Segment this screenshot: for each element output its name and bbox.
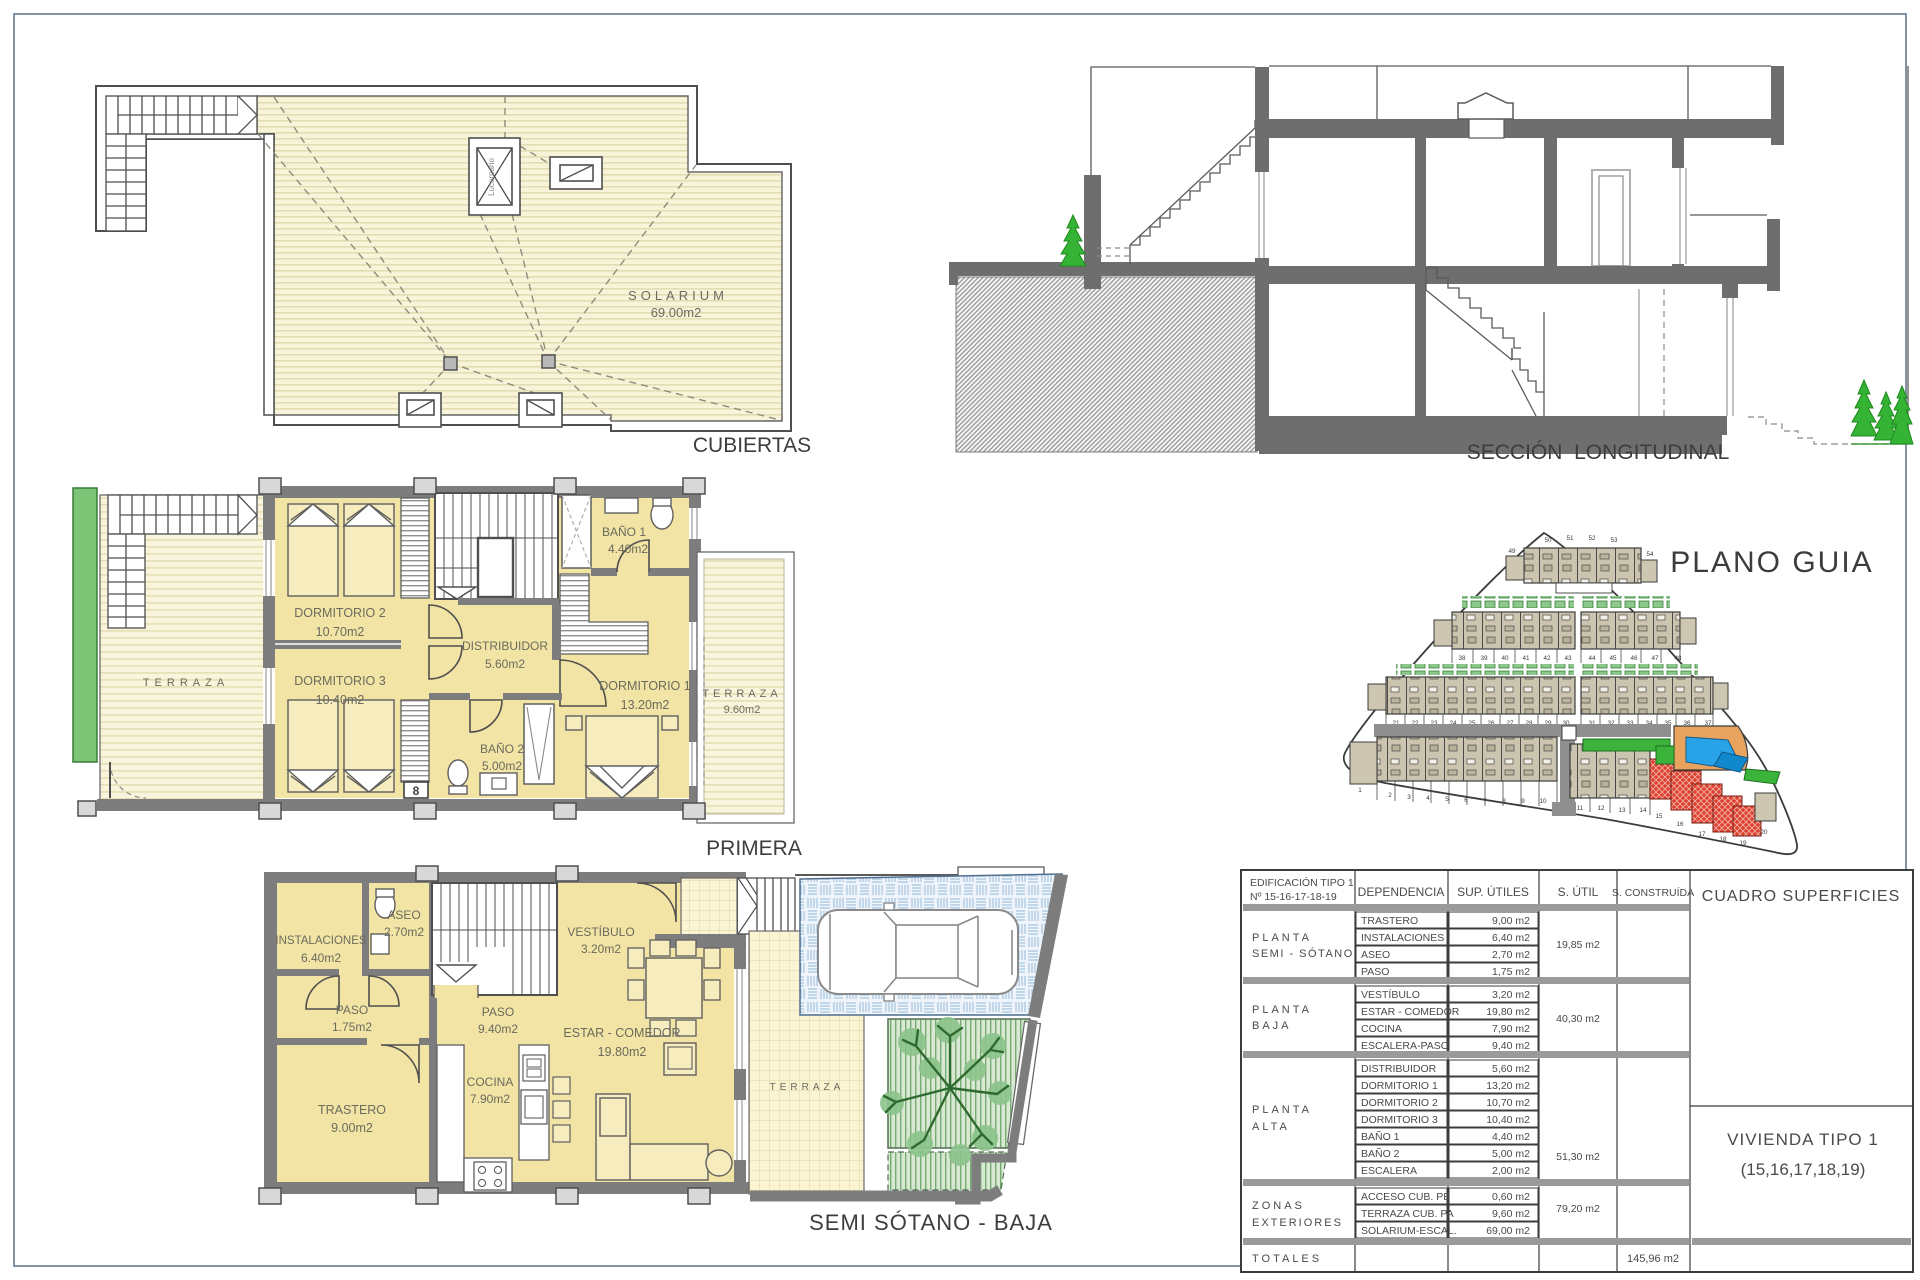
svg-text:TRASTERO: TRASTERO (318, 1103, 386, 1117)
svg-text:9,60 m2: 9,60 m2 (1492, 1208, 1530, 1220)
svg-text:DORMITORIO 3: DORMITORIO 3 (1361, 1114, 1438, 1126)
svg-text:49: 49 (1508, 548, 1516, 555)
svg-text:ESTAR - COMEDOR: ESTAR - COMEDOR (563, 1026, 680, 1040)
svg-text:69,00 m2: 69,00 m2 (1486, 1225, 1530, 1237)
svg-text:53: 53 (1610, 537, 1618, 544)
svg-text:9.40m2: 9.40m2 (478, 1022, 518, 1036)
svg-text:ESCALERA-PASO: ESCALERA-PASO (1361, 1040, 1449, 1052)
svg-text:7.90m2: 7.90m2 (470, 1092, 510, 1106)
svg-text:20: 20 (1760, 829, 1768, 836)
svg-text:14: 14 (1639, 807, 1647, 814)
svg-text:DORMITORIO 2: DORMITORIO 2 (294, 606, 385, 620)
svg-text:3.20m2: 3.20m2 (581, 942, 621, 956)
svg-text:SEMI - SÓTANO: SEMI - SÓTANO (1252, 947, 1354, 960)
svg-text:13.20m2: 13.20m2 (621, 698, 670, 712)
svg-text:19,85 m2: 19,85 m2 (1556, 939, 1600, 951)
svg-text:SECCIÓN LONGITUDINAL: SECCIÓN LONGITUDINAL (1467, 441, 1730, 464)
svg-text:145,96 m2: 145,96 m2 (1627, 1253, 1679, 1265)
svg-text:51: 51 (1566, 535, 1574, 542)
svg-text:17: 17 (1698, 831, 1706, 838)
svg-text:ASEO: ASEO (1361, 949, 1390, 961)
svg-text:ESCALERA: ESCALERA (1361, 1165, 1417, 1177)
svg-text:DEPENDENCIA: DEPENDENCIA (1358, 885, 1445, 899)
svg-text:5,00 m2: 5,00 m2 (1492, 1148, 1530, 1160)
svg-text:13,20 m2: 13,20 m2 (1486, 1080, 1530, 1092)
svg-text:BAJA: BAJA (1252, 1020, 1292, 1032)
svg-text:TRASTERO: TRASTERO (1361, 915, 1418, 927)
svg-text:BAÑO 2: BAÑO 2 (480, 742, 524, 756)
svg-text:19.80m2: 19.80m2 (598, 1045, 647, 1059)
svg-text:79,20 m2: 79,20 m2 (1556, 1203, 1600, 1215)
svg-text:39: 39 (1480, 655, 1488, 662)
svg-text:TOTALES: TOTALES (1252, 1253, 1322, 1265)
svg-text:DORMITORIO 1: DORMITORIO 1 (1361, 1080, 1438, 1092)
svg-text:1.75m2: 1.75m2 (332, 1020, 372, 1034)
svg-text:2,70 m2: 2,70 m2 (1492, 949, 1530, 961)
svg-text:9.60m2: 9.60m2 (724, 704, 761, 716)
svg-text:48: 48 (1674, 655, 1682, 662)
svg-text:6.40m2: 6.40m2 (301, 951, 341, 965)
svg-text:(15,16,17,18,19): (15,16,17,18,19) (1741, 1160, 1866, 1179)
svg-text:PASO: PASO (336, 1003, 368, 1017)
svg-text:15: 15 (1655, 813, 1663, 820)
svg-text:PRIMERA: PRIMERA (706, 837, 802, 860)
svg-text:10.40m2: 10.40m2 (316, 693, 365, 707)
svg-text:DORMITORIO 3: DORMITORIO 3 (294, 674, 385, 688)
svg-text:52: 52 (1588, 535, 1596, 542)
svg-text:CUBIERTAS: CUBIERTAS (693, 434, 811, 457)
svg-text:42: 42 (1543, 655, 1551, 662)
svg-text:10,40 m2: 10,40 m2 (1486, 1114, 1530, 1126)
svg-text:TERRAZA: TERRAZA (143, 677, 229, 689)
svg-text:S. CONSTRUÍDA: S. CONSTRUÍDA (1612, 886, 1694, 899)
svg-text:DISTRIBUIDOR: DISTRIBUIDOR (462, 639, 548, 653)
svg-text:Lucernario: Lucernario (487, 158, 496, 196)
svg-text:TERRAZA: TERRAZA (702, 688, 781, 700)
svg-text:5: 5 (1445, 796, 1449, 803)
svg-text:SUP. ÚTILES: SUP. ÚTILES (1457, 884, 1529, 899)
svg-text:16: 16 (1676, 821, 1684, 828)
svg-text:BAÑO 1: BAÑO 1 (602, 525, 646, 539)
svg-text:4,40 m2: 4,40 m2 (1492, 1131, 1530, 1143)
svg-text:38: 38 (1458, 655, 1466, 662)
svg-text:ZONAS: ZONAS (1252, 1200, 1305, 1212)
svg-text:3: 3 (1407, 794, 1411, 801)
svg-text:51,30 m2: 51,30 m2 (1556, 1151, 1600, 1163)
svg-text:7: 7 (1483, 798, 1487, 805)
svg-text:8: 8 (1502, 798, 1506, 805)
svg-text:BAÑO 1: BAÑO 1 (1361, 1130, 1400, 1143)
svg-text:2: 2 (1388, 792, 1392, 799)
svg-text:INSTALACIONES: INSTALACIONES (275, 935, 366, 947)
svg-text:VESTÍBULO: VESTÍBULO (567, 924, 634, 939)
svg-text:43: 43 (1564, 655, 1572, 662)
svg-text:9,40 m2: 9,40 m2 (1492, 1040, 1530, 1052)
svg-text:Nº 15-16-17-18-19: Nº 15-16-17-18-19 (1250, 891, 1337, 903)
svg-text:SEMI SÓTANO - BAJA: SEMI SÓTANO - BAJA (809, 1210, 1053, 1235)
svg-text:46: 46 (1630, 655, 1638, 662)
svg-text:1,75 m2: 1,75 m2 (1492, 966, 1530, 978)
svg-text:SOLARIUM: SOLARIUM (628, 288, 728, 303)
svg-text:PLANO GUIA: PLANO GUIA (1670, 546, 1873, 579)
svg-text:ESTAR - COMEDOR: ESTAR - COMEDOR (1361, 1006, 1460, 1018)
svg-text:10,70 m2: 10,70 m2 (1486, 1097, 1530, 1109)
svg-text:4.40m2: 4.40m2 (608, 542, 648, 556)
svg-text:19: 19 (1739, 840, 1747, 847)
svg-text:7,90 m2: 7,90 m2 (1492, 1023, 1530, 1035)
svg-text:3,20 m2: 3,20 m2 (1492, 989, 1530, 1001)
svg-text:11: 11 (1577, 805, 1584, 812)
svg-text:DORMITORIO 1: DORMITORIO 1 (599, 679, 690, 693)
svg-text:ASEO: ASEO (387, 908, 420, 922)
svg-text:5.00m2: 5.00m2 (482, 759, 522, 773)
svg-text:PLANTA: PLANTA (1252, 1104, 1312, 1116)
svg-text:PASO: PASO (482, 1005, 514, 1019)
svg-text:54: 54 (1646, 551, 1654, 558)
svg-text:69.00m2: 69.00m2 (651, 305, 702, 320)
svg-text:41: 41 (1522, 655, 1530, 662)
svg-text:2,00 m2: 2,00 m2 (1492, 1165, 1530, 1177)
svg-text:13: 13 (1618, 807, 1626, 814)
svg-text:VESTÍBULO: VESTÍBULO (1361, 988, 1420, 1001)
svg-text:DORMITORIO 2: DORMITORIO 2 (1361, 1097, 1438, 1109)
svg-text:TERRAZA CUB. PA: TERRAZA CUB. PA (1361, 1208, 1454, 1220)
svg-text:50: 50 (1544, 537, 1552, 544)
svg-text:44: 44 (1588, 655, 1596, 662)
svg-text:9.00m2: 9.00m2 (331, 1121, 373, 1135)
svg-text:PLANTA: PLANTA (1252, 1004, 1312, 1016)
svg-text:6,40 m2: 6,40 m2 (1492, 932, 1530, 944)
svg-text:5.60m2: 5.60m2 (485, 657, 525, 671)
svg-text:6: 6 (1464, 797, 1468, 804)
svg-text:DISTRIBUIDOR: DISTRIBUIDOR (1361, 1063, 1437, 1075)
svg-text:4: 4 (1426, 795, 1430, 802)
svg-text:PASO: PASO (1361, 966, 1389, 978)
svg-text:INSTALACIONES: INSTALACIONES (1361, 932, 1444, 944)
svg-text:EXTERIORES: EXTERIORES (1252, 1217, 1343, 1229)
svg-text:10: 10 (1539, 798, 1547, 805)
svg-text:9: 9 (1521, 798, 1525, 805)
svg-text:47: 47 (1651, 655, 1659, 662)
svg-text:10.70m2: 10.70m2 (316, 625, 365, 639)
svg-text:EDIFICACIÓN TIPO 1: EDIFICACIÓN TIPO 1 (1250, 876, 1354, 889)
svg-text:18: 18 (1719, 836, 1727, 843)
svg-text:SOLARIUM-ESCAL.: SOLARIUM-ESCAL. (1361, 1225, 1457, 1237)
svg-text:2.70m2: 2.70m2 (384, 925, 424, 939)
svg-text:19,80 m2: 19,80 m2 (1486, 1006, 1530, 1018)
svg-text:40,30 m2: 40,30 m2 (1556, 1013, 1600, 1025)
svg-text:12: 12 (1597, 805, 1605, 812)
svg-text:BAÑO 2: BAÑO 2 (1361, 1147, 1400, 1160)
svg-text:ACCESO CUB. PB: ACCESO CUB. PB (1361, 1191, 1450, 1203)
svg-text:COCINA: COCINA (467, 1075, 514, 1089)
svg-text:CUADRO SUPERFICIES: CUADRO SUPERFICIES (1702, 888, 1900, 905)
svg-text:TERRAZA: TERRAZA (770, 1082, 845, 1093)
svg-text:PLANTA: PLANTA (1252, 932, 1312, 944)
svg-text:COCINA: COCINA (1361, 1023, 1402, 1035)
svg-text:5,60 m2: 5,60 m2 (1492, 1063, 1530, 1075)
svg-text:S. ÚTIL: S. ÚTIL (1558, 884, 1599, 899)
svg-text:45: 45 (1609, 655, 1617, 662)
svg-text:ALTA: ALTA (1252, 1121, 1290, 1133)
svg-text:1: 1 (1358, 787, 1362, 794)
svg-text:0,60 m2: 0,60 m2 (1492, 1191, 1530, 1203)
svg-text:8: 8 (413, 784, 420, 798)
svg-text:40: 40 (1501, 655, 1509, 662)
svg-text:9,00 m2: 9,00 m2 (1492, 915, 1530, 927)
svg-text:VIVIENDA TIPO 1: VIVIENDA TIPO 1 (1727, 1130, 1879, 1149)
